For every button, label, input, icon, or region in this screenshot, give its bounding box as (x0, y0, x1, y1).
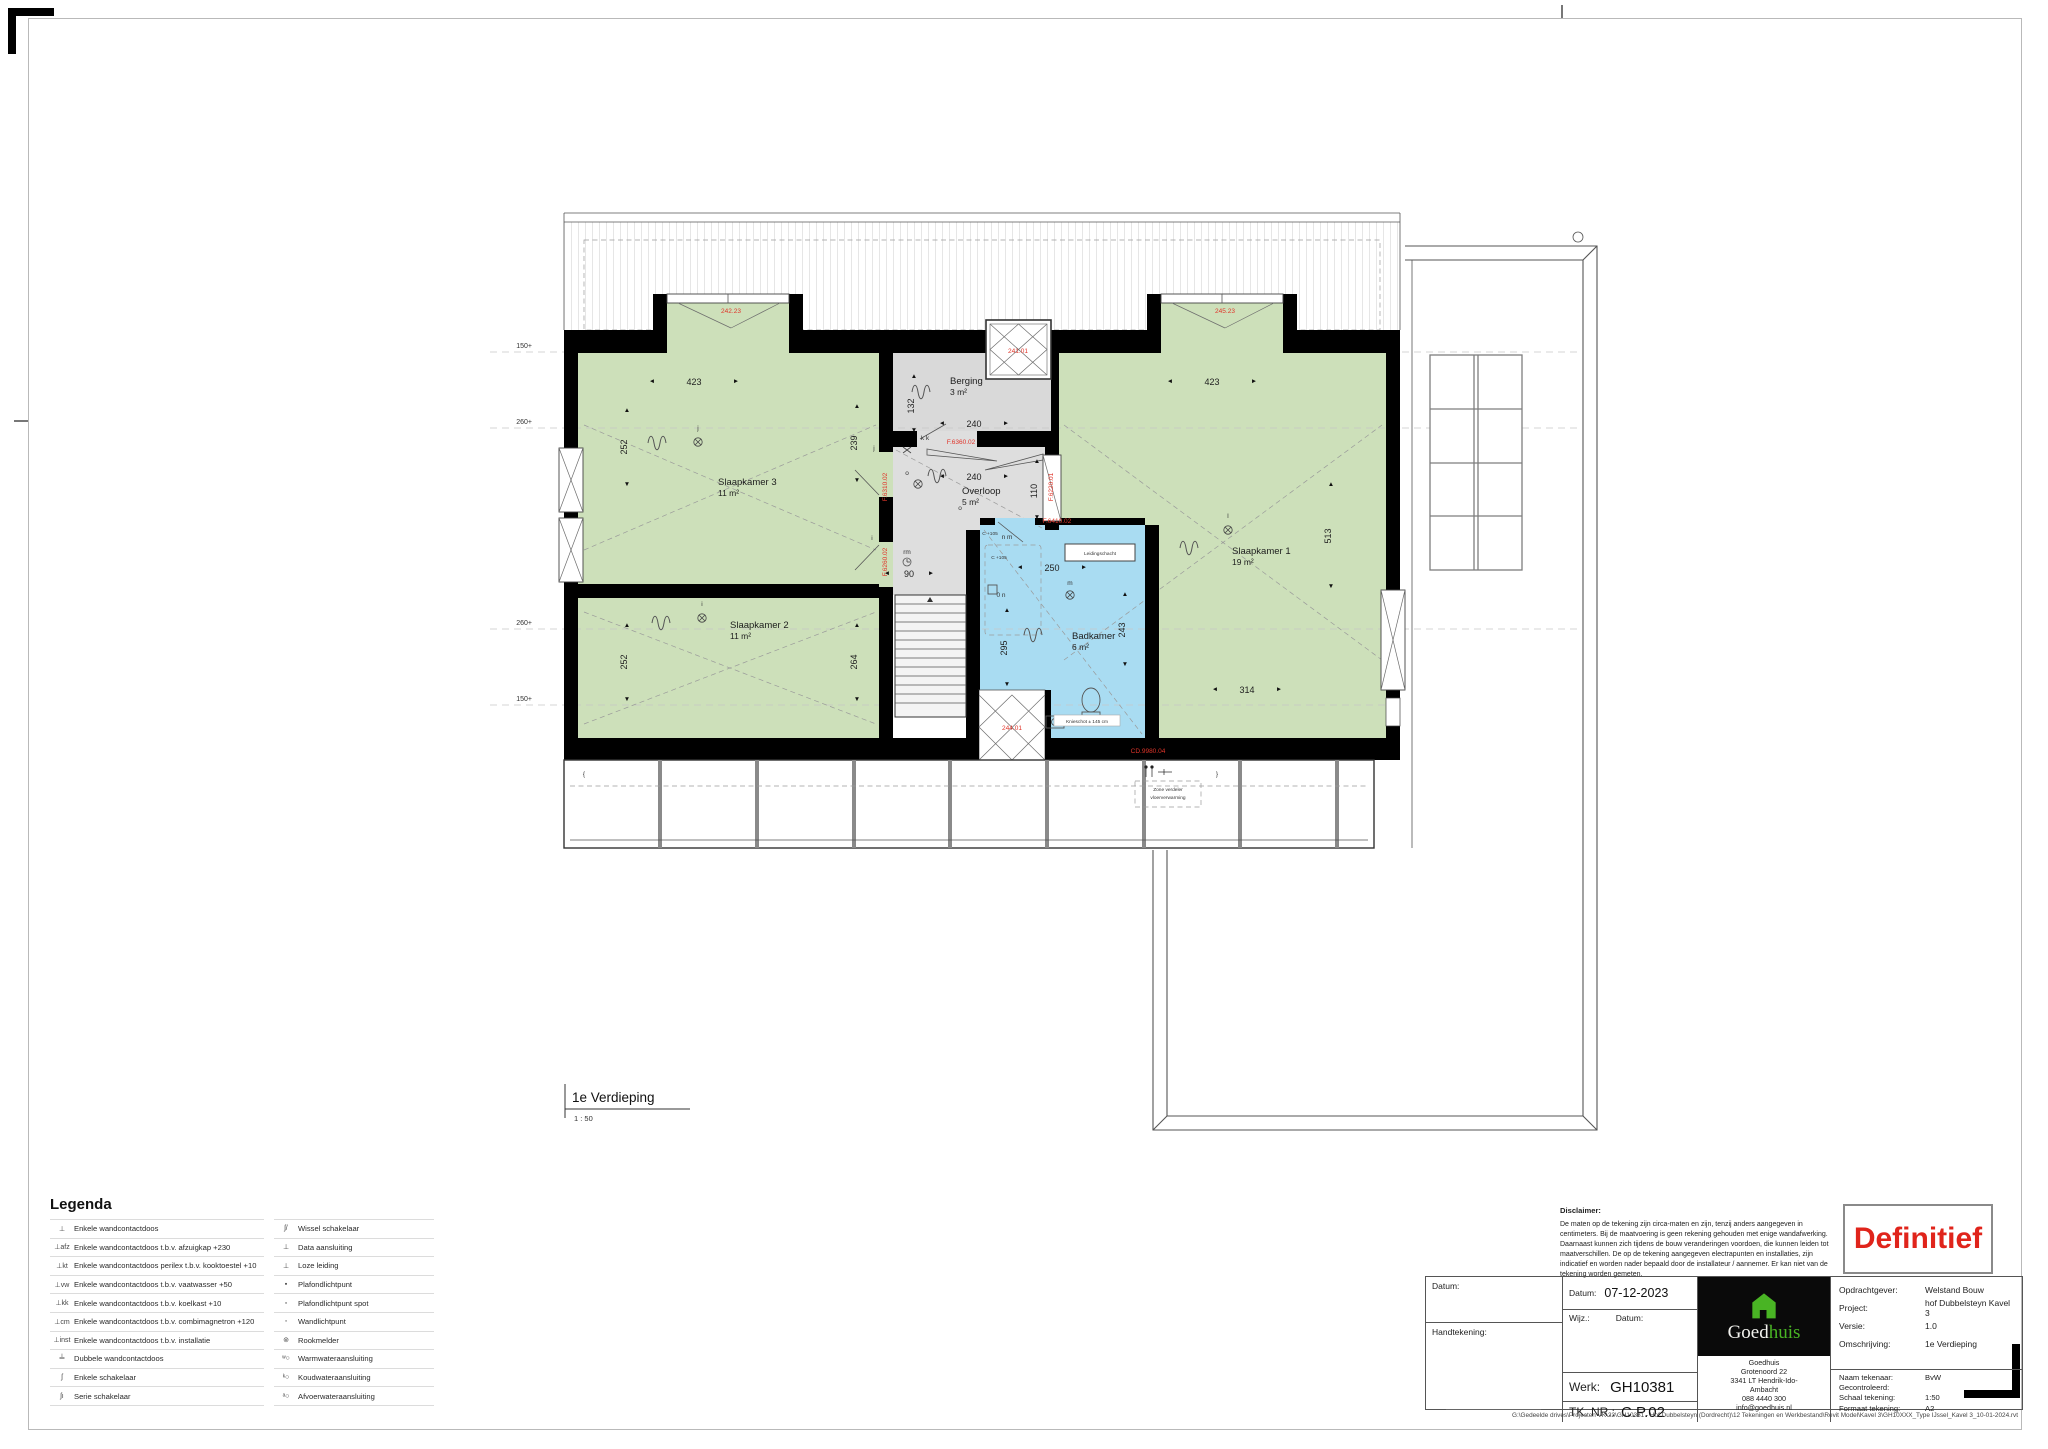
cold-water-icon: ᵏ○ (274, 1374, 298, 1381)
red-window-overloop-right: F.6220.01 (1048, 472, 1055, 501)
title-block: Datum: Handtekening: Datum: 07-12-2023 W… (1425, 1276, 2023, 1410)
project-row: Naam tekenaar:BvW (1839, 1372, 2016, 1382)
legend-title: Legenda (50, 1196, 434, 1213)
socket-koelkast-icon: ⊥kk (50, 1299, 74, 1307)
corridor-fill (893, 530, 966, 595)
legend-item: ʃEnkele schakelaar (50, 1369, 264, 1388)
corner-mark-top-left-vertical (8, 8, 16, 54)
dim-arrow-icon: ▼ (1328, 583, 1334, 590)
room-area-badkamer: 6 m² (1072, 642, 1089, 652)
logo-text-goed: Goed (1728, 1322, 1769, 1343)
dim-arrow-icon: ▲ (911, 373, 917, 380)
socket-combimagnetron-icon: ⊥cm (50, 1318, 74, 1326)
legend-item: ʃıSerie schakelaar (50, 1387, 264, 1406)
legend-item: ⊥instEnkele wandcontactdoos t.b.v. insta… (50, 1332, 264, 1351)
dim-arrow-icon: ▲ (624, 407, 630, 414)
wijz-datum-label: Datum: (1616, 1313, 1643, 1369)
fold-tick-top (1561, 5, 1563, 18)
room-area-berging: 3 m² (950, 387, 967, 397)
zone-verdeler-line2: vloerverwarming (1150, 795, 1186, 801)
knieschot-label: Knieschot ± 145 cm (1066, 719, 1108, 725)
dim-arrow-icon: ◄ (1017, 564, 1023, 571)
letter-o2: o (958, 505, 962, 512)
project-row: Omschrijving:1e Verdieping (1839, 1335, 2016, 1353)
letter-rm: rm (903, 549, 911, 556)
legend-column-2: ʃ/Wissel schakelaar ⊥Data aansluiting ⊥L… (274, 1219, 434, 1406)
legend-item: ▪Plafondlichtpunt (274, 1276, 434, 1295)
red-door-berging: F.6360.02 (947, 439, 976, 446)
leidingschacht-label: Leidingschacht (1084, 551, 1117, 557)
project-row: Versie:1.0 (1839, 1317, 2016, 1335)
dim-arrow-icon: ► (1276, 686, 1282, 693)
room-slaapkamer3-fill (578, 353, 879, 584)
plan-scale: 1 : 50 (574, 1114, 593, 1123)
terrace-skylight-grid (1430, 355, 1522, 570)
red-door-badkamer: F.6410.02 (1043, 518, 1072, 525)
dim-arrow-icon: ▼ (624, 696, 630, 703)
legend-item: ╧Dubbele wandcontactdoos (50, 1350, 264, 1369)
dim-stair-width: 90 (904, 569, 914, 579)
dim-arrow-icon: ▲ (1122, 591, 1128, 598)
disclaimer-title: Disclaimer: (1560, 1206, 1842, 1215)
level-label-150-bottom: 150+ (516, 696, 532, 703)
disclaimer: Disclaimer: De maten op de tekening zijn… (1560, 1206, 1842, 1280)
note-c105b: C +105 (991, 555, 1007, 561)
dim-arrow-icon: ► (1251, 378, 1257, 385)
room-name-slaapkamer3: Slaapkamer 3 (718, 477, 777, 488)
letter-kk: k k (921, 435, 930, 442)
fold-tick-left (14, 420, 28, 422)
dim-arrow-icon: ◄ (1167, 378, 1173, 385)
dim-239: 239 (849, 435, 859, 450)
leidingschacht-box: Leidingschacht (1065, 544, 1135, 561)
room-name-badkamer: Badkamer (1072, 631, 1115, 642)
title-block-signature-cell: Datum: Handtekening: (1426, 1277, 1563, 1422)
wijz-label: Wijz.: (1569, 1313, 1590, 1369)
socket-perilex-icon: ⊥kt (50, 1262, 74, 1270)
legend-item: ⊥vwEnkele wandcontactdoos t.b.v. vaatwas… (50, 1276, 264, 1295)
company-address: Goedhuis Grotenoord 22 3341 LT Hendrik-I… (1698, 1356, 1830, 1412)
project-row: Schaal tekening:1:50 (1839, 1393, 2016, 1403)
staircase (895, 595, 966, 717)
red-window-corridor: F.6260.02 (882, 547, 889, 576)
conduit-icon: ⊥ (274, 1262, 298, 1270)
disclaimer-body: De maten op de tekening zijn circa-maten… (1560, 1220, 1842, 1280)
single-switch-icon: ʃ (50, 1374, 74, 1381)
dim-arrow-icon: ▼ (854, 477, 860, 484)
red-code-bottom: CD.9980.04 (1131, 748, 1166, 755)
dim-badkamer-width: 250 (1044, 563, 1059, 573)
project-row: Project:hof Dubbelsteyn Kavel 3 (1839, 1299, 2016, 1317)
dim-arrow-icon: ▲ (854, 622, 860, 629)
file-path: G:\Gedeelde drives\Projecten VK\23\GH103… (818, 1412, 2018, 1419)
werk-value: GH10381 (1610, 1379, 1674, 1396)
zone-verdeler-line1: Zone verdeler (1153, 787, 1183, 793)
dim-arrow-icon: ▲ (1328, 481, 1334, 488)
plan-title: 1e Verdieping (572, 1090, 655, 1105)
legend: Legenda ⊥Enkele wandcontactdoos ⊥afzEnke… (50, 1196, 434, 1406)
letter-i1: i (701, 601, 702, 608)
room-name-slaapkamer2: Slaapkamer 2 (730, 620, 789, 631)
dormer-left (653, 294, 803, 353)
legend-item: ⊚Rookmelder (274, 1332, 434, 1351)
data-outlet-icon: ⊥ (274, 1243, 298, 1251)
legend-item: ᵏ○Koudwateraansluiting (274, 1369, 434, 1388)
datum2-label: Datum: (1569, 1288, 1596, 1298)
datum-value: 07-12-2023 (1604, 1286, 1668, 1300)
legend-item: ⊥Enkele wandcontactdoos (50, 1219, 264, 1239)
project-row: Gecontroleerd: (1839, 1382, 2016, 1392)
room-name-overloop: Overloop (962, 486, 1001, 497)
letter-nm: n m (1002, 534, 1013, 541)
dim-arrow-icon: ▼ (1034, 514, 1040, 521)
dim-arrow-icon: ◄ (939, 473, 945, 480)
handtekening-label: Handtekening: (1426, 1323, 1562, 1417)
dim-arrow-icon: ▲ (624, 622, 630, 629)
letter-m: m (1067, 580, 1072, 587)
red-window-left: 242.23 (721, 308, 741, 315)
dim-arrow-icon: ► (928, 570, 934, 577)
legend-item: ʷ○Warmwateraansluiting (274, 1350, 434, 1369)
level-label-260-top: 260+ (516, 419, 532, 426)
dim-264: 264 (849, 654, 859, 669)
room-area-slaapkamer1: 19 m² (1232, 557, 1254, 567)
red-window-right: 245.23 (1215, 308, 1235, 315)
legend-item: ᵃ○Afvoerwateraansluiting (274, 1387, 434, 1406)
title-block-logo-cell: Goedhuis Goedhuis Grotenoord 22 3341 LT … (1698, 1277, 1831, 1422)
signature-line (1446, 1409, 1541, 1410)
socket-icon: ⊥ (50, 1225, 74, 1233)
status-stamp: Definitief (1843, 1204, 1993, 1274)
dim-arrow-icon: ◄ (939, 420, 945, 427)
dim-arrow-icon: ▲ (854, 403, 860, 410)
dim-arrow-icon: ► (1003, 420, 1009, 427)
socket-installatie-icon: ⊥inst (50, 1336, 74, 1344)
letter-i2: i (871, 535, 872, 542)
room-name-berging: Berging (950, 376, 983, 387)
level-label-150-top: 150+ (516, 343, 532, 350)
legend-item: ⊥kkEnkele wandcontactdoos t.b.v. koelkas… (50, 1294, 264, 1313)
legend-item: ⊥Data aansluiting (274, 1239, 434, 1258)
dim-sk2-height: 252 (619, 654, 629, 669)
red-window-bottom: 244.01 (1002, 725, 1022, 732)
series-switch-icon: ʃı (50, 1393, 74, 1400)
wall-light-icon: ◦ (274, 1318, 298, 1325)
dim-arrow-icon: ▼ (624, 481, 630, 488)
house-logo-icon (1747, 1290, 1781, 1320)
double-socket-icon: ╧ (50, 1355, 74, 1362)
dim-sk1-width: 423 (1204, 377, 1219, 387)
dim-sk1-bottom: 314 (1239, 685, 1254, 695)
legend-item: ◦Wandlichtpunt (274, 1313, 434, 1332)
floorplan-drawing: 150+ 260+ 260+ 150+ (480, 200, 1630, 1160)
smoke-detector-icon: ⊚ (274, 1336, 298, 1344)
room-area-overloop: 5 m² (962, 497, 979, 507)
room-name-slaapkamer1: Slaapkamer 1 (1232, 546, 1291, 557)
ceiling-spot-icon: ▫ (274, 1300, 298, 1307)
dim-arrow-icon: ◄ (1212, 686, 1218, 693)
letter-0n: 0 n (996, 592, 1005, 599)
red-window-overloop-left: F.6310.02 (882, 472, 889, 501)
legend-item: ⊥Loze leiding (274, 1257, 434, 1276)
letter-j2: j (872, 445, 874, 452)
dim-arrow-icon: ► (733, 378, 739, 385)
title-block-project-cell: Opdrachtgever:Welstand Bouw Project:hof … (1831, 1277, 2022, 1422)
dim-arrow-icon: ▼ (854, 696, 860, 703)
room-area-slaapkamer2: 11 m² (730, 631, 751, 641)
red-shaft: 241.01 (1008, 348, 1028, 355)
dim-sk3-width: 423 (686, 377, 701, 387)
dim-arrow-icon: ▼ (911, 427, 917, 434)
note-c105a: C +105 (982, 531, 998, 537)
company-logo: Goedhuis (1698, 1277, 1830, 1356)
dim-berging-height: 132 (906, 398, 916, 413)
legend-item: ⊥cmEnkele wandcontactdoos t.b.v. combima… (50, 1313, 264, 1332)
dim-arrow-icon: ◄ (649, 378, 655, 385)
dim-arrow-icon: ▼ (1122, 661, 1128, 668)
roof-bottom: { } (564, 760, 1374, 848)
dim-badkamer-height: 295 (999, 640, 1009, 655)
drain-water-icon: ᵃ○ (274, 1393, 298, 1400)
dim-arrow-icon: ► (1081, 564, 1087, 571)
view-title: 1e Verdieping 1 : 50 (565, 1084, 690, 1123)
datum-label: Datum: (1426, 1277, 1562, 1323)
dim-arrow-icon: ▲ (1004, 607, 1010, 614)
letter-o1: o (905, 470, 909, 477)
project-row: Opdrachtgever:Welstand Bouw (1839, 1281, 2016, 1299)
legend-item: ▫Plafondlichtpunt spot (274, 1294, 434, 1313)
werk-label: Werk: (1569, 1380, 1600, 1394)
legend-item: ʃ/Wissel schakelaar (274, 1219, 434, 1239)
ceiling-light-icon: ▪ (274, 1281, 298, 1288)
room-area-slaapkamer3: 11 m² (718, 488, 739, 498)
title-block-date-cell: Datum: 07-12-2023 Wijz.: Datum: Werk: GH… (1563, 1277, 1698, 1422)
socket-vaatwasser-icon: ⊥vw (50, 1281, 74, 1289)
dim-arrow-icon: ▲ (1034, 458, 1040, 465)
socket-afzuigkap-icon: ⊥afz (50, 1243, 74, 1251)
dim-arrow-icon: ► (1003, 473, 1009, 480)
dim-berging-width: 240 (966, 419, 981, 429)
dim-sk1-height: 513 (1323, 528, 1333, 543)
dim-243: 243 (1117, 622, 1127, 637)
status-stamp-text: Definitief (1854, 1222, 1982, 1256)
legend-column-1: ⊥Enkele wandcontactdoos ⊥afzEnkele wandc… (50, 1219, 264, 1406)
dim-sk3-height: 252 (619, 439, 629, 454)
legend-item: ⊥ktEnkele wandcontactdoos perilex t.b.v.… (50, 1257, 264, 1276)
changeover-switch-icon: ʃ/ (274, 1225, 298, 1232)
letter-j1: j (696, 425, 698, 432)
level-label-260-bottom: 260+ (516, 620, 532, 627)
dim-110: 110 (1029, 484, 1039, 498)
legend-item: ⊥afzEnkele wandcontactdoos t.b.v. afzuig… (50, 1239, 264, 1258)
dim-arrow-icon: ▼ (1004, 681, 1010, 688)
logo-text-huis: huis (1769, 1322, 1801, 1343)
dim-overloop-width: 240 (966, 472, 981, 482)
hot-water-icon: ʷ○ (274, 1355, 298, 1362)
dormer-right (1147, 294, 1297, 353)
knieschot-note: Knieschot ± 145 cm (1054, 715, 1120, 726)
